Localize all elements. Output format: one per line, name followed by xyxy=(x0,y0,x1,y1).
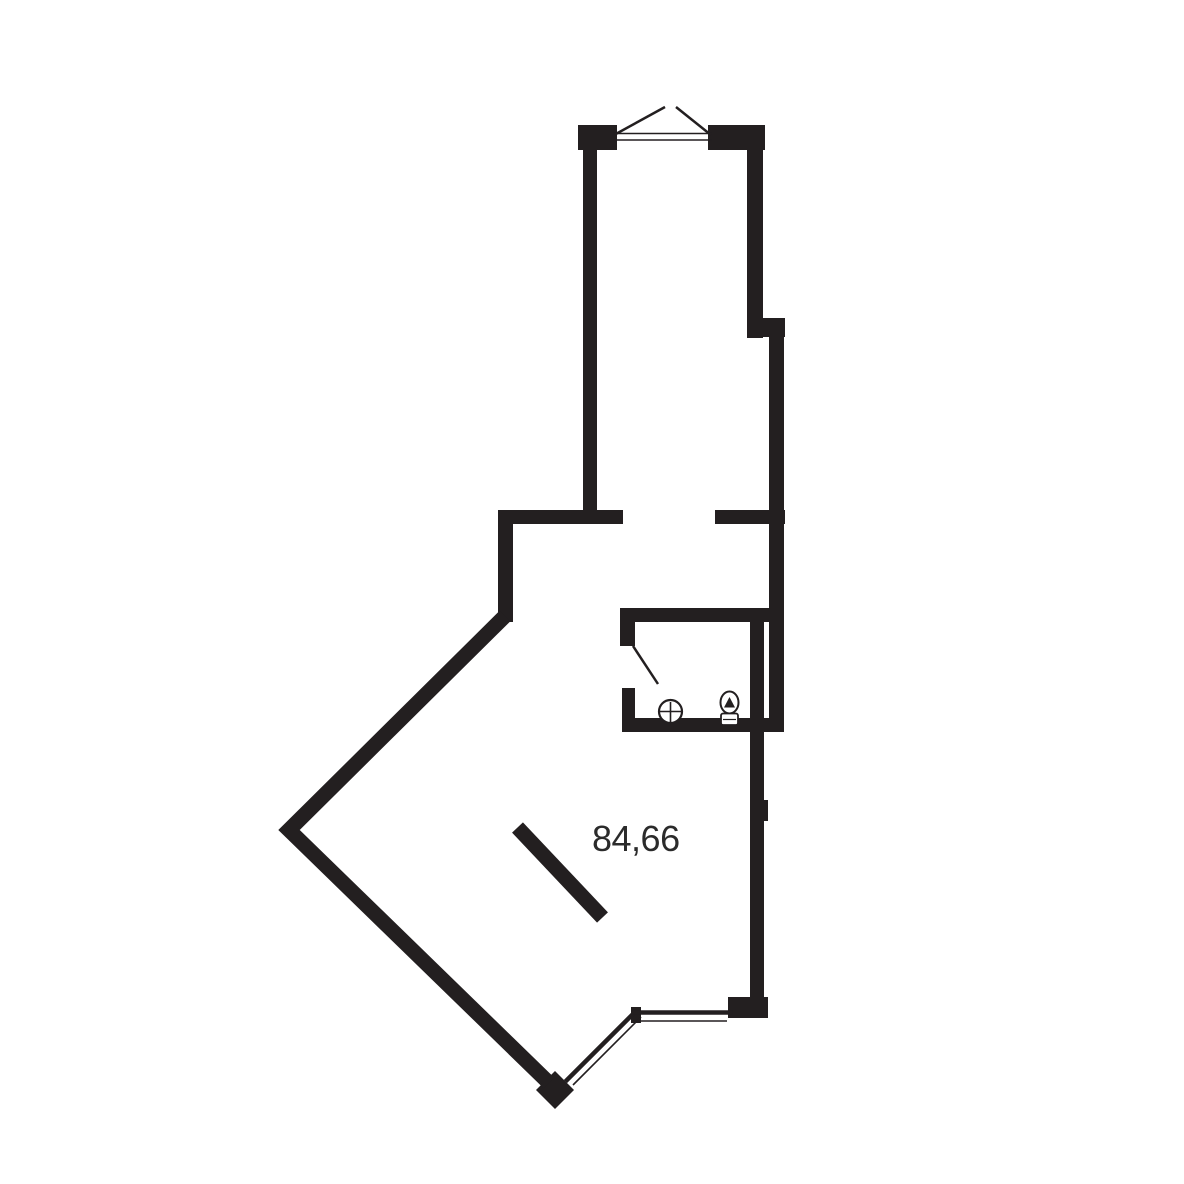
entrance-double-door-icon xyxy=(613,107,712,140)
diagonal-window-outer-line xyxy=(567,1012,635,1080)
wall-corridor-right-upper xyxy=(747,148,763,338)
wall-bathroom-left-upper xyxy=(620,608,635,646)
walls xyxy=(498,125,785,1109)
wall-top-right-block xyxy=(708,125,765,150)
sink-icon xyxy=(659,700,682,723)
wall-main-right xyxy=(750,608,764,1004)
toilet-icon xyxy=(721,692,739,726)
wall-right-stub xyxy=(715,510,785,524)
floor-plan: 84,66 xyxy=(0,0,1184,1184)
wall-left-stub xyxy=(498,510,623,524)
wall-corner-pier-foot xyxy=(728,997,768,1018)
wall-top-left-block xyxy=(578,125,617,150)
area-label: 84,66 xyxy=(592,818,680,859)
diagonal-window-inner-line xyxy=(573,1017,641,1085)
wall-outer-right xyxy=(769,318,784,732)
diagonal-walls xyxy=(289,616,603,1083)
wall-hinge-mark xyxy=(763,800,768,821)
bathroom-door-swing-icon xyxy=(633,646,658,684)
wall-left-mid xyxy=(498,510,513,622)
wall-corridor-left xyxy=(583,148,597,514)
entrance-right-leaf xyxy=(676,107,711,135)
windows xyxy=(567,1012,730,1085)
wall-diagonal-left xyxy=(289,616,549,1083)
bathroom-door-leaf xyxy=(633,646,658,684)
wall-interior-diagonal-stub xyxy=(518,828,603,918)
floor-plan-canvas: 84,66 xyxy=(0,0,1184,1184)
entrance-left-leaf xyxy=(614,107,665,135)
